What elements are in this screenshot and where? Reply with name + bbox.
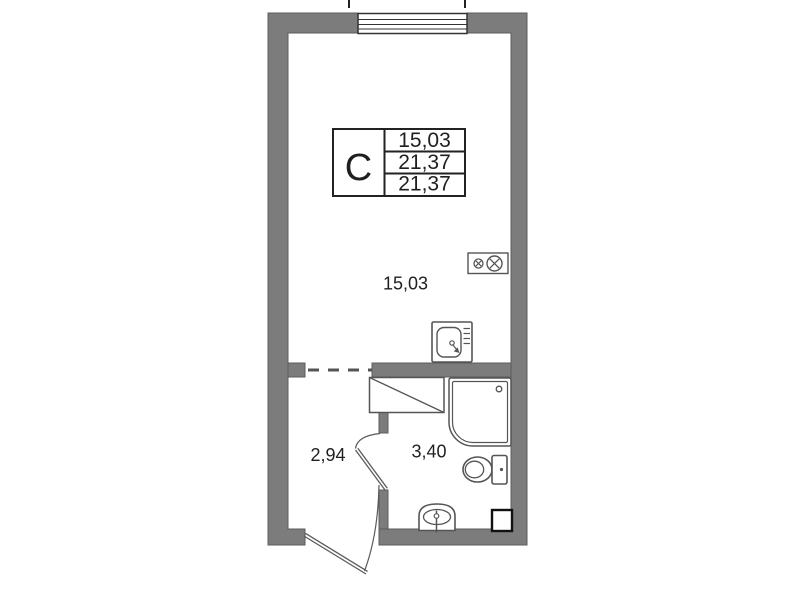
- bathroom-door-leaf: [358, 448, 388, 488]
- vent-duct-icon: [492, 510, 512, 531]
- stamp-table: С 15,03 21,37 21,37: [333, 129, 465, 196]
- floor-plan-svg: С 15,03 21,37 21,37 15,03 2,94 3,40: [0, 0, 799, 600]
- appliance-niche: [370, 378, 445, 413]
- stamp-type-label: С: [345, 147, 372, 189]
- bathroom-door-swing-arc: [356, 434, 381, 449]
- stamp-row-value: 21,37: [398, 173, 451, 196]
- window: [358, 14, 467, 34]
- bathroom-partition-top-stub: [379, 412, 388, 433]
- outer-wall-left-top-bottom: [268, 13, 358, 545]
- washbasin-tap: [434, 514, 439, 519]
- window-frame: [358, 14, 467, 34]
- entry-door: [304, 485, 379, 574]
- stove-icon: [468, 253, 508, 274]
- stamp-row-value: 15,03: [398, 129, 451, 152]
- entry-door-swing-arc: [365, 485, 380, 571]
- bathroom-door-leaf: [356, 450, 386, 490]
- entry-door-leaf: [306, 533, 368, 571]
- bathroom-area-label: 3,40: [411, 442, 446, 462]
- divider-wall-left-stub: [288, 363, 305, 377]
- bathroom-partition-bottom-stub: [379, 490, 388, 529]
- main-room-area-label: 15,03: [383, 274, 428, 294]
- toilet-button: [500, 468, 503, 471]
- shower-icon: [449, 378, 511, 446]
- sink-icon: [432, 322, 472, 362]
- stamp-row-value: 21,37: [398, 151, 451, 174]
- bathroom-door: [356, 434, 388, 491]
- hallway-area-label: 2,94: [310, 445, 345, 465]
- floor-plan-canvas: С 15,03 21,37 21,37 15,03 2,94 3,40: [0, 0, 799, 600]
- entry-door-leaf: [304, 536, 366, 574]
- washbasin-icon: [419, 504, 455, 533]
- divider-wall-main: [372, 363, 511, 377]
- toilet-icon: [463, 456, 507, 485]
